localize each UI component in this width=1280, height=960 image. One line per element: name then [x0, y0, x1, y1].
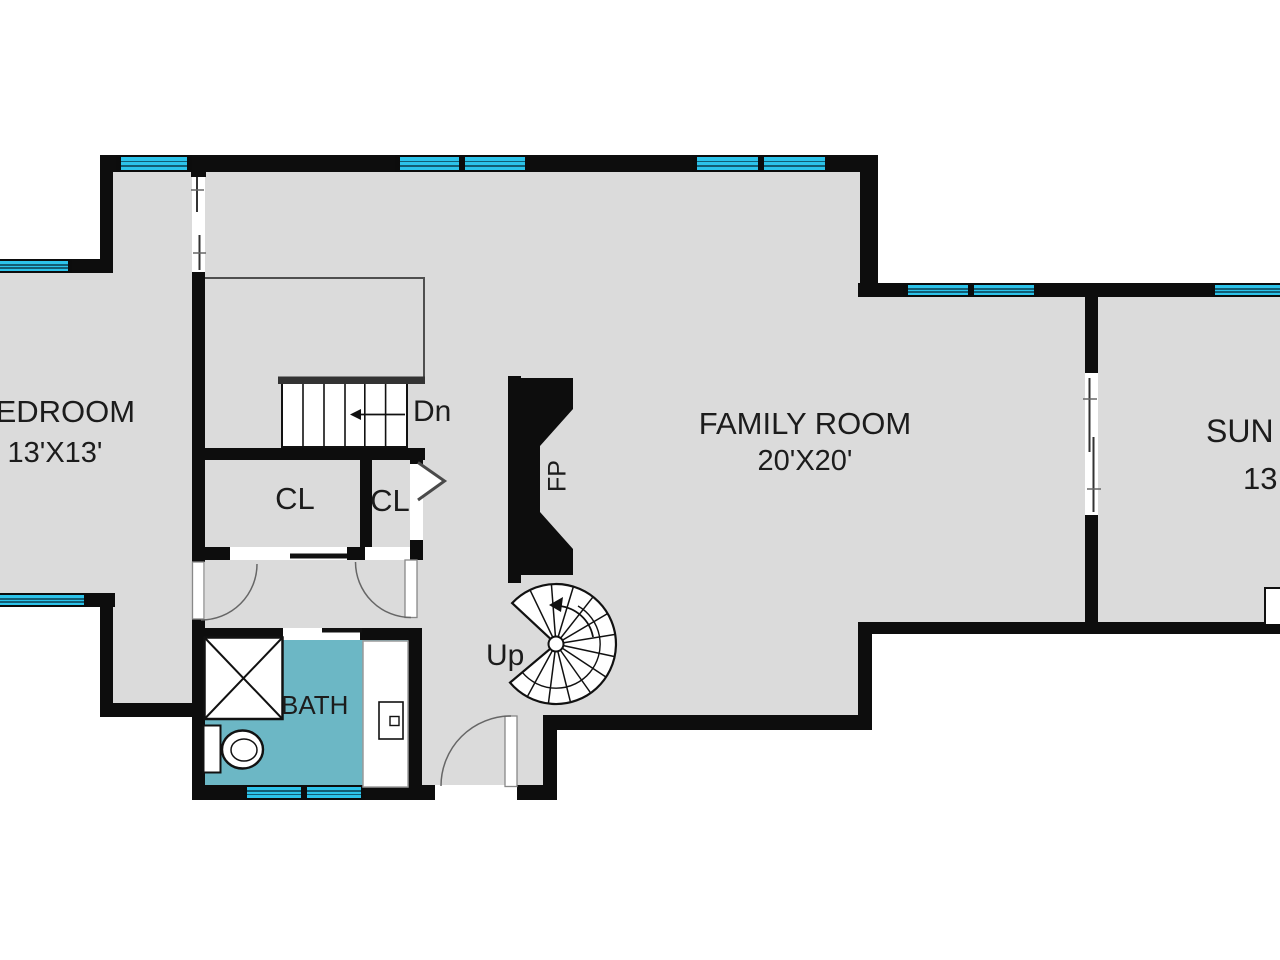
hall-door-a	[193, 562, 258, 620]
fixtures-layer	[0, 0, 1280, 960]
closet1-pocket-door	[290, 554, 347, 559]
bath-pocket-door	[322, 628, 362, 633]
spiral-staircase	[510, 584, 616, 704]
closet2-door	[418, 463, 445, 501]
closet2-label: CL	[367, 483, 413, 519]
closet1-label: CL	[270, 481, 320, 517]
stairs-up-label: Up	[486, 639, 524, 673]
sunroom-sliding-door	[1083, 378, 1101, 512]
exterior-door	[441, 716, 517, 787]
bath-label: BATH	[281, 690, 348, 721]
stair-landing-edge	[278, 377, 425, 385]
stairs-down	[278, 377, 425, 448]
floor-plan: BEDROOM 13'X13' FAMILY ROOM 20'X20' SUN …	[0, 0, 1280, 960]
stairs-down-label: Dn	[413, 395, 451, 429]
sun-room-label: SUN	[1206, 413, 1274, 450]
fireplace-label: FP	[544, 460, 573, 492]
sun-room-size: 13	[1243, 461, 1277, 497]
toilet	[204, 726, 264, 773]
family-room-size: 20'X20'	[650, 445, 960, 478]
shower	[205, 638, 283, 720]
family-room-label: FAMILY ROOM	[650, 406, 960, 442]
hall-door-b	[356, 560, 418, 618]
sunroom-edge-opening	[1264, 587, 1280, 624]
bedroom-sliding-door	[191, 177, 206, 270]
vanity	[363, 641, 408, 787]
bedroom-size: 13'X13'	[0, 437, 160, 470]
bedroom-label: BEDROOM	[0, 394, 160, 430]
